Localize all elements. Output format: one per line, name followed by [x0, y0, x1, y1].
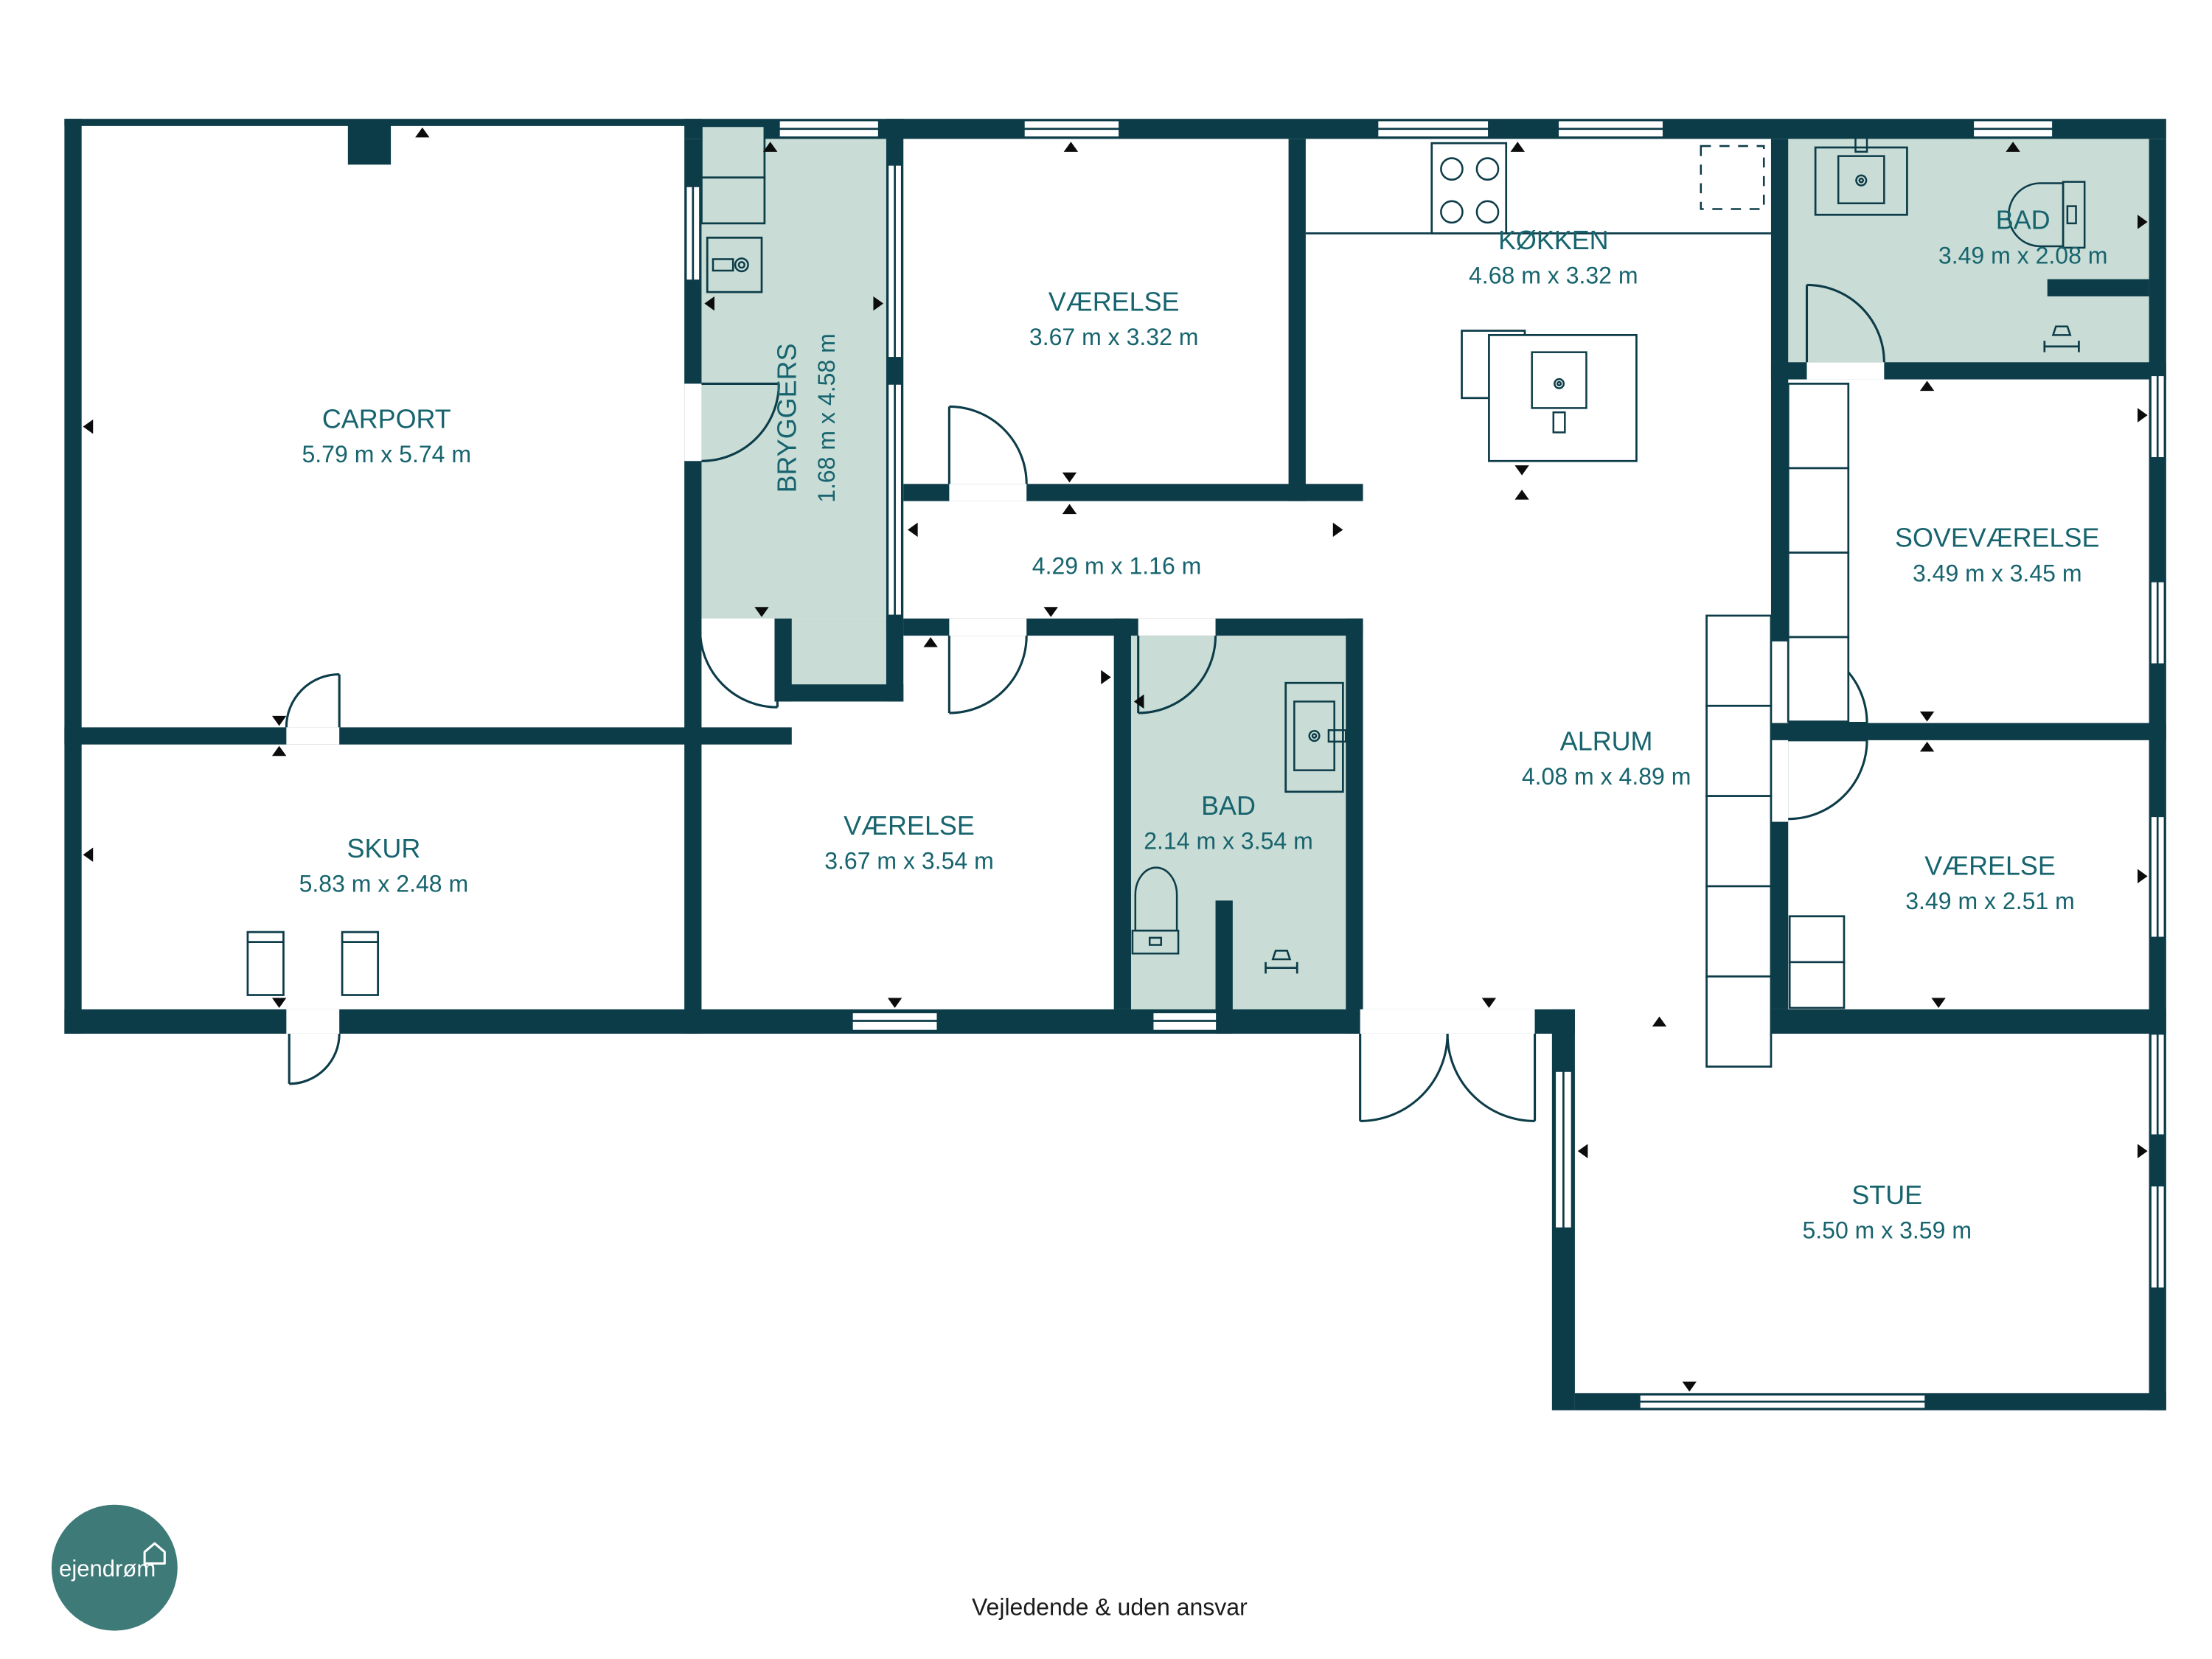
window-bryggers-east-2 — [888, 383, 902, 616]
label-skur: SKUR — [347, 833, 421, 863]
door-openings — [286, 362, 1884, 1034]
door-carport-skur — [286, 675, 339, 728]
kitchen-island — [1462, 331, 1637, 462]
bad-mid-vanity-sink-icon — [1286, 683, 1346, 792]
ejendroem-logo: ejendrøm — [52, 1505, 178, 1631]
window-stue-bottom — [1639, 1394, 1925, 1408]
dims-sovevaerelse: 3.49 m x 3.45 m — [1913, 560, 2082, 586]
washer-sink-icon — [707, 237, 762, 292]
dims-bad-mid: 2.14 m x 3.54 m — [1144, 827, 1313, 854]
dims-stue: 5.50 m x 3.59 m — [1802, 1217, 1972, 1244]
label-stue: STUE — [1851, 1180, 1922, 1210]
window-top-bad — [1973, 120, 2053, 137]
door-vaerelse-mid — [949, 636, 1026, 713]
window-right-stue-2 — [2151, 1186, 2165, 1289]
door-patio-double — [1360, 1034, 1535, 1121]
label-bryggers: BRYGGERS — [772, 344, 802, 493]
window-bottom-bad-mid — [1152, 1012, 1217, 1031]
label-bad-mid: BAD — [1201, 790, 1256, 821]
dims-skur: 5.83 m x 2.48 m — [299, 871, 469, 897]
label-carport: CARPORT — [322, 404, 451, 434]
kitchen-tall-cabinets — [1707, 616, 1771, 1067]
window-top-bryggers — [779, 120, 879, 137]
label-bad-top: BAD — [1996, 205, 2051, 235]
label-vaerelse-mid: VÆRELSE — [844, 810, 975, 841]
floor-bryggers-niche — [792, 619, 886, 684]
door-bryggers-entry — [700, 630, 778, 707]
logo-text: ejendrøm — [59, 1556, 156, 1582]
window-top-koekken-left — [1377, 120, 1489, 137]
door-vaerelse-right — [1788, 740, 1867, 819]
dims-gang: 4.29 m x 1.16 m — [1032, 553, 1202, 580]
floorplan-canvas: CARPORT 5.79 m x 5.74 m SKUR 5.83 m x 2.… — [0, 0, 2212, 1659]
dims-bad-top: 3.49 m x 2.08 m — [1938, 242, 2108, 268]
door-skur-exterior — [289, 1034, 339, 1084]
stove-icon — [1432, 143, 1506, 233]
window-right-vaerelse — [2151, 816, 2165, 938]
window-right-sovevaerelse-2 — [2151, 581, 2165, 664]
carport-post — [348, 125, 391, 164]
floorplan-page: CARPORT 5.79 m x 5.74 m SKUR 5.83 m x 2.… — [0, 0, 2212, 1659]
window-bryggers-east-1 — [888, 164, 902, 358]
footer-disclaimer: Vejledende & uden ansvar — [972, 1593, 1248, 1620]
dims-vaerelse-mid: 3.67 m x 3.54 m — [824, 848, 994, 874]
shower-partition-bad-mid — [1216, 900, 1233, 1034]
bryggers-cabinets — [701, 126, 764, 223]
dims-alrum: 4.08 m x 4.89 m — [1522, 763, 1691, 790]
window-right-stue-1 — [2151, 1034, 2165, 1135]
dims-carport: 5.79 m x 5.74 m — [302, 441, 471, 467]
label-sovevaerelse: SOVEVÆRELSE — [1895, 523, 2099, 553]
dims-vaerelse-top: 3.67 m x 3.32 m — [1029, 324, 1199, 350]
dims-vaerelse-right: 3.49 m x 2.51 m — [1905, 888, 2075, 914]
window-carport-bryggers — [686, 186, 700, 280]
label-alrum: ALRUM — [1560, 726, 1653, 756]
vaerelse-right-wardrobe — [1790, 917, 1844, 1008]
doors — [286, 285, 1884, 1121]
window-top-koekken-right — [1558, 120, 1664, 137]
skur-appliances — [248, 932, 378, 995]
window-stue-left — [1555, 1071, 1572, 1228]
dims-koekken: 4.68 m x 3.32 m — [1469, 262, 1638, 288]
window-top-vaerelse — [1023, 120, 1119, 137]
label-vaerelse-right: VÆRELSE — [1924, 850, 2056, 880]
label-koekken: KØKKEN — [1498, 225, 1609, 255]
dims-bryggers: 1.68 m x 4.58 m — [813, 333, 840, 503]
fridge-dashed-icon — [1701, 146, 1764, 209]
sovevaerelse-wardrobe — [1788, 383, 1848, 721]
shower-partition-bad-top — [2048, 279, 2149, 296]
window-right-sovevaerelse-1 — [2151, 375, 2165, 459]
window-bottom-vaerelse-mid — [852, 1012, 938, 1031]
door-vaerelse-top — [949, 406, 1026, 484]
label-vaerelse-top: VÆRELSE — [1048, 286, 1180, 316]
